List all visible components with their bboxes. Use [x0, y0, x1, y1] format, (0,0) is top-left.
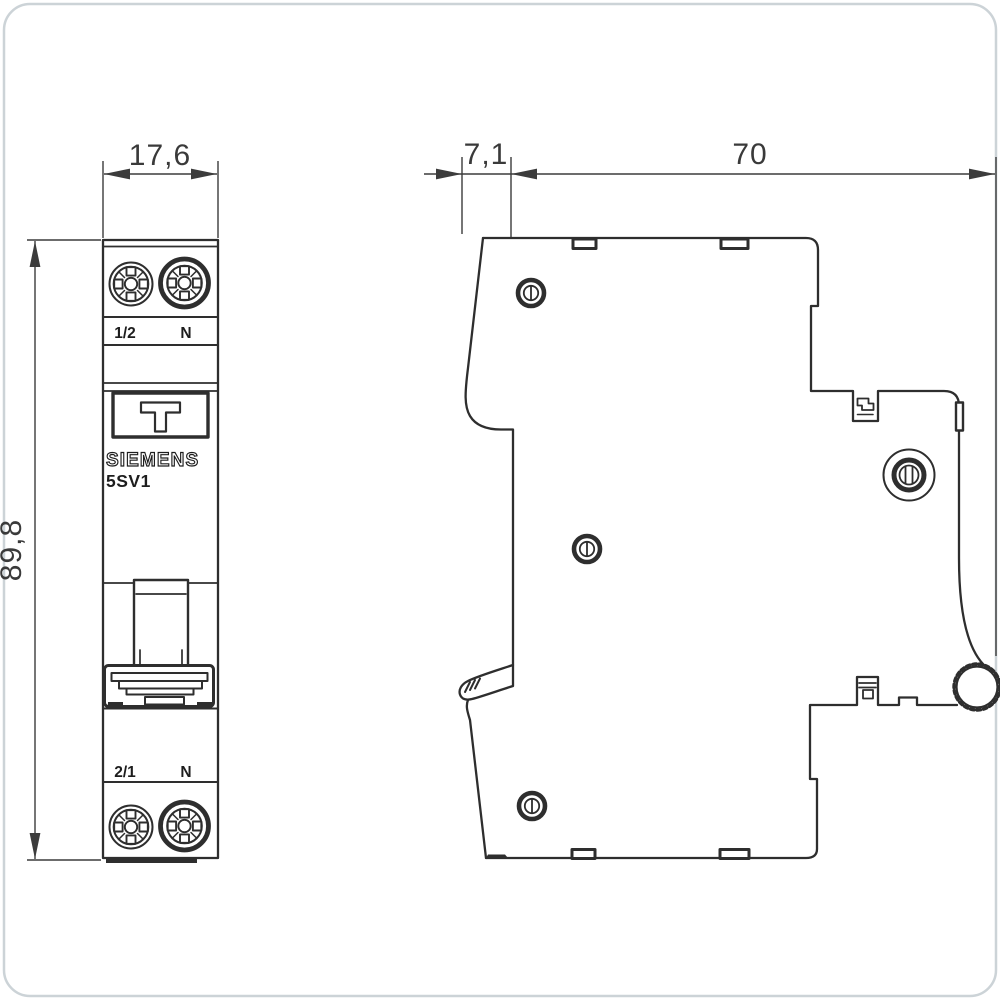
arrowhead-down-icon: [30, 833, 41, 859]
case-rivet-middle-icon: [574, 536, 600, 562]
front-height-label: 89,8: [0, 519, 28, 581]
arrowhead-depth-left-icon: [511, 169, 537, 180]
terminal-screw-bottom-left-icon: [110, 806, 153, 849]
case-screw-large-icon: [884, 450, 935, 501]
height-dimension: 89,8: [0, 240, 101, 860]
front-bottom-foot: [106, 858, 197, 864]
terminal-label-bottom-left: 2/1: [114, 764, 136, 781]
bottom-tab-left-icon: [572, 850, 595, 859]
arrowhead-depth-right-icon: [969, 169, 995, 180]
top-tab-left-icon: [573, 239, 596, 249]
case-rivet-top-icon: [518, 280, 544, 306]
brand-label: SIEMENS: [106, 450, 199, 471]
terminal-screw-top-left-icon: [110, 263, 153, 306]
arrowhead-up-icon: [30, 241, 41, 267]
terminal-screw-bottom-right-icon: [161, 802, 209, 850]
circuit-breaker-dimension-drawing: 17,6 89,8 1/2 N SIEMENS 5S: [0, 0, 1000, 1000]
terminal-screw-top-right-icon: [161, 259, 209, 307]
side-body: [466, 238, 986, 858]
width-dimension: 17,6: [103, 139, 218, 238]
arrowhead-offset-icon: [436, 169, 462, 180]
terminal-label-top-left: 1/2: [114, 325, 136, 342]
din-clip-upper: [858, 399, 874, 415]
front-width-label: 17,6: [129, 139, 191, 172]
arrowhead-right-icon: [191, 169, 217, 180]
side-offset-label: 7,1: [464, 138, 509, 171]
side-view: 7,1 70: [424, 138, 1000, 859]
case-rivet-bottom-icon: [519, 793, 545, 819]
knurled-wheel-icon: [954, 664, 1000, 710]
terminal-label-bottom-right: N: [180, 764, 191, 781]
side-depth-label: 70: [732, 138, 767, 171]
side-bottom-foot: [486, 855, 508, 859]
bottom-tab-right-icon: [720, 850, 749, 859]
toggle-rocker: [105, 666, 214, 708]
arrowhead-left-icon: [104, 169, 130, 180]
test-button: [113, 393, 208, 437]
terminal-label-top-right: N: [180, 325, 191, 342]
front-view: 17,6 89,8 1/2 N SIEMENS 5S: [0, 139, 218, 863]
rear-latch-tab-icon: [956, 403, 963, 431]
model-label: 5SV1: [106, 471, 151, 491]
technical-drawing-page: 17,6 89,8 1/2 N SIEMENS 5S: [0, 0, 1000, 1000]
din-clip-lower: [859, 683, 876, 699]
side-toggle-lever: [460, 665, 513, 700]
top-tab-right-icon: [721, 239, 748, 249]
